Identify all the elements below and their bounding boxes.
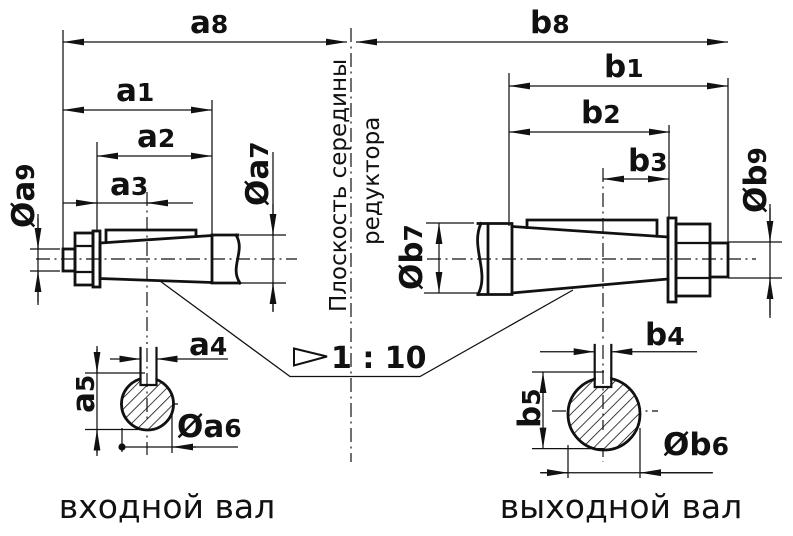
dim-label-a7: Øa7 [240,141,276,206]
center-plane-text-line2: редуктора [359,117,385,245]
dim-dot-a6 [118,443,125,450]
dim-label-b2: b2 [581,95,621,131]
input-keyway-mask [142,344,156,385]
dim-label-b8: b8 [530,5,570,41]
dim-label-b9: Øb9 [738,147,774,213]
dim-label-a1: a1 [116,73,154,109]
dim-label-a9: Øa9 [6,163,42,228]
dim-label-a5: a5 [66,375,102,413]
dim-label-b7: Øb7 [394,224,430,290]
center-plane-text-line1: Плоскость середины [326,59,352,312]
taper-ratio-label: 1 : 10 [331,341,427,376]
dim-label-b4: b4 [645,317,685,353]
dim-label-b3: b3 [628,143,668,179]
caption-output-shaft: выходной вал [500,487,743,526]
caption-input-shaft: входной вал [59,487,275,526]
dim-label-a4: a4 [189,327,227,363]
dim-label-a2: a2 [137,119,175,155]
dim-label-a6: Øa6 [177,409,242,445]
dim-label-b1: b1 [604,49,644,85]
engineering-drawing: a8 a1 a2 a3 Øa9 Øa7 b8 b1 b2 b3 [0,0,793,536]
dim-label-a3: a3 [110,167,148,203]
dim-label-b5: b5 [512,388,548,428]
dim-label-a8: a8 [190,5,228,41]
drawing-canvas: a8 a1 a2 a3 Øa9 Øa7 b8 b1 b2 b3 [0,0,793,536]
output-section-circle [568,378,640,450]
dim-label-b6: Øb6 [663,427,729,463]
